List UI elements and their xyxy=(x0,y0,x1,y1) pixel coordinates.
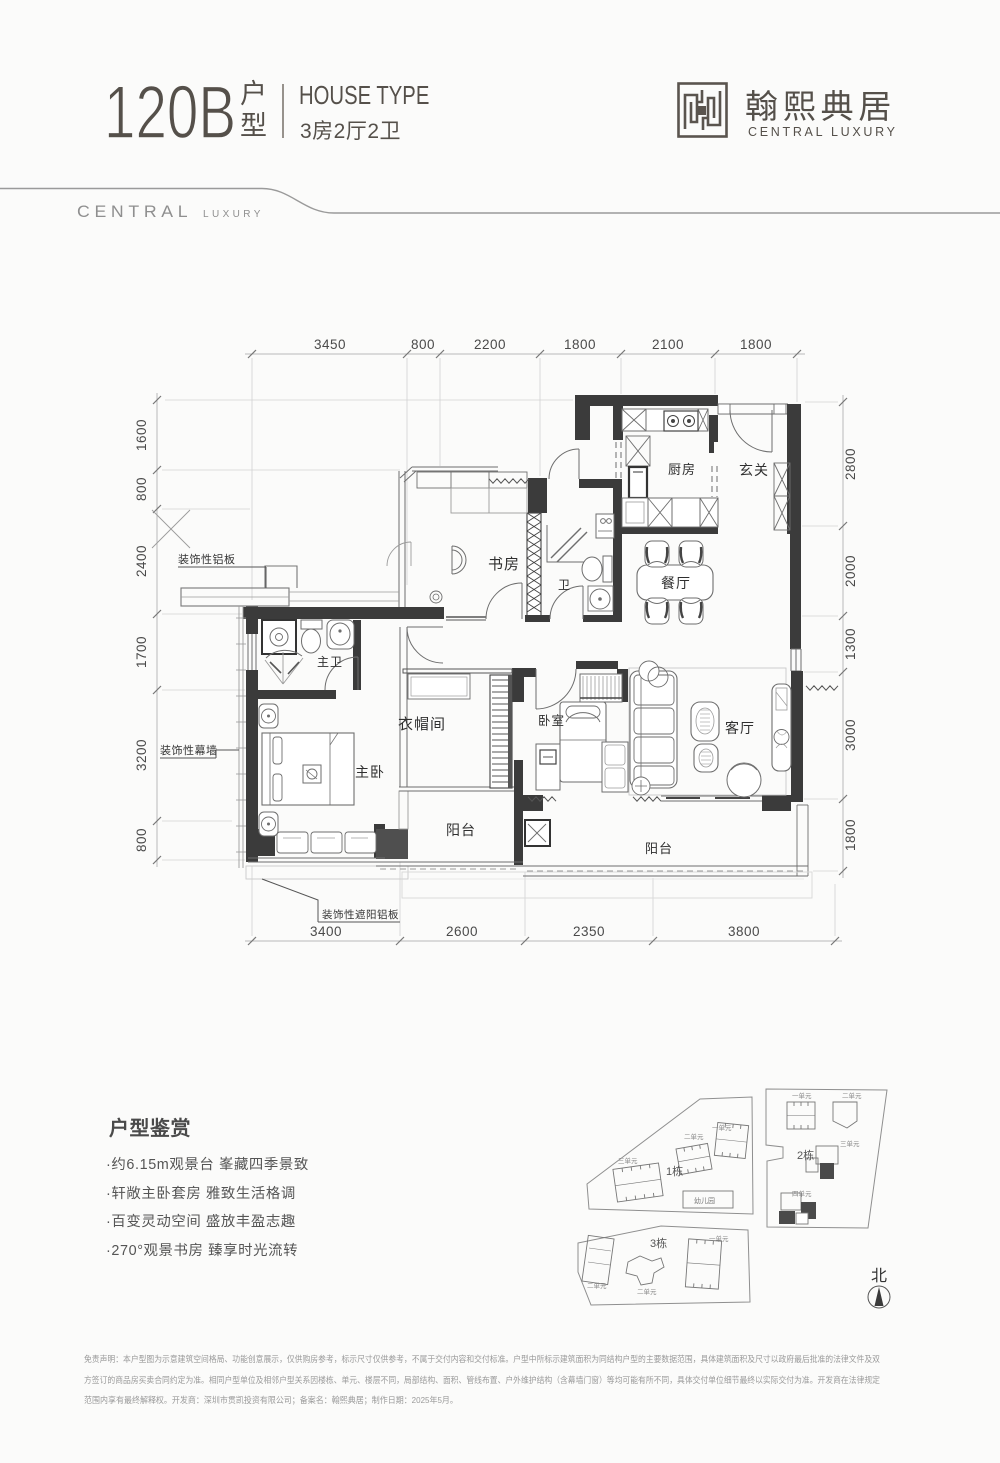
svg-text:2100: 2100 xyxy=(652,337,684,352)
svg-text:主卫: 主卫 xyxy=(317,655,343,669)
svg-text:三单元: 三单元 xyxy=(618,1156,638,1165)
svg-text:厨房: 厨房 xyxy=(668,462,696,477)
svg-text:1800: 1800 xyxy=(740,337,772,352)
svg-text:3栋: 3栋 xyxy=(650,1236,667,1250)
svg-text:1300: 1300 xyxy=(843,628,858,660)
svg-text:1800: 1800 xyxy=(564,337,596,352)
svg-text:3400: 3400 xyxy=(310,924,342,939)
svg-text:2400: 2400 xyxy=(134,545,149,577)
svg-text:衣帽间: 衣帽间 xyxy=(398,716,446,733)
svg-text:2800: 2800 xyxy=(843,448,858,480)
svg-text:卧室: 卧室 xyxy=(538,713,565,728)
svg-text:2200: 2200 xyxy=(474,337,506,352)
svg-text:800: 800 xyxy=(411,337,435,352)
svg-text:一单元: 一单元 xyxy=(792,1091,812,1100)
svg-text:玄关: 玄关 xyxy=(739,462,769,478)
svg-text:2栋: 2栋 xyxy=(797,1148,814,1162)
svg-text:餐厅: 餐厅 xyxy=(661,575,691,591)
svg-text:1700: 1700 xyxy=(134,636,149,668)
svg-text:三单元: 三单元 xyxy=(840,1139,860,1148)
svg-text:主卧: 主卧 xyxy=(355,764,385,780)
svg-text:阳台: 阳台 xyxy=(645,841,673,856)
svg-text:阳台: 阳台 xyxy=(446,822,476,838)
svg-text:3000: 3000 xyxy=(843,719,858,751)
svg-text:3450: 3450 xyxy=(314,337,346,352)
svg-text:幼儿园: 幼儿园 xyxy=(694,1196,715,1205)
svg-text:2350: 2350 xyxy=(573,924,605,939)
svg-text:1栋: 1栋 xyxy=(666,1164,683,1178)
svg-text:装饰性幕墙: 装饰性幕墙 xyxy=(160,743,218,757)
svg-text:3200: 3200 xyxy=(134,739,149,771)
svg-text:卫: 卫 xyxy=(558,578,571,592)
svg-text:一单元: 一单元 xyxy=(709,1234,729,1243)
svg-text:2000: 2000 xyxy=(843,555,858,587)
svg-text:二单元: 二单元 xyxy=(684,1132,704,1141)
svg-text:1600: 1600 xyxy=(134,419,149,451)
svg-text:书房: 书房 xyxy=(488,556,520,573)
svg-text:北: 北 xyxy=(871,1267,887,1285)
svg-text:装饰性铝板: 装饰性铝板 xyxy=(178,552,236,566)
svg-text:二单元: 二单元 xyxy=(587,1281,607,1290)
svg-text:客厅: 客厅 xyxy=(725,720,755,736)
svg-text:1800: 1800 xyxy=(843,819,858,851)
svg-text:800: 800 xyxy=(134,828,149,852)
svg-text:3800: 3800 xyxy=(728,924,760,939)
svg-text:800: 800 xyxy=(134,477,149,501)
svg-text:四单元: 四单元 xyxy=(792,1189,812,1198)
svg-text:二单元: 二单元 xyxy=(637,1287,657,1296)
svg-text:装饰性遮阳铝板: 装饰性遮阳铝板 xyxy=(322,908,399,921)
svg-text:二单元: 二单元 xyxy=(842,1091,862,1100)
svg-text:2600: 2600 xyxy=(446,924,478,939)
svg-text:一单元: 一单元 xyxy=(712,1123,732,1132)
